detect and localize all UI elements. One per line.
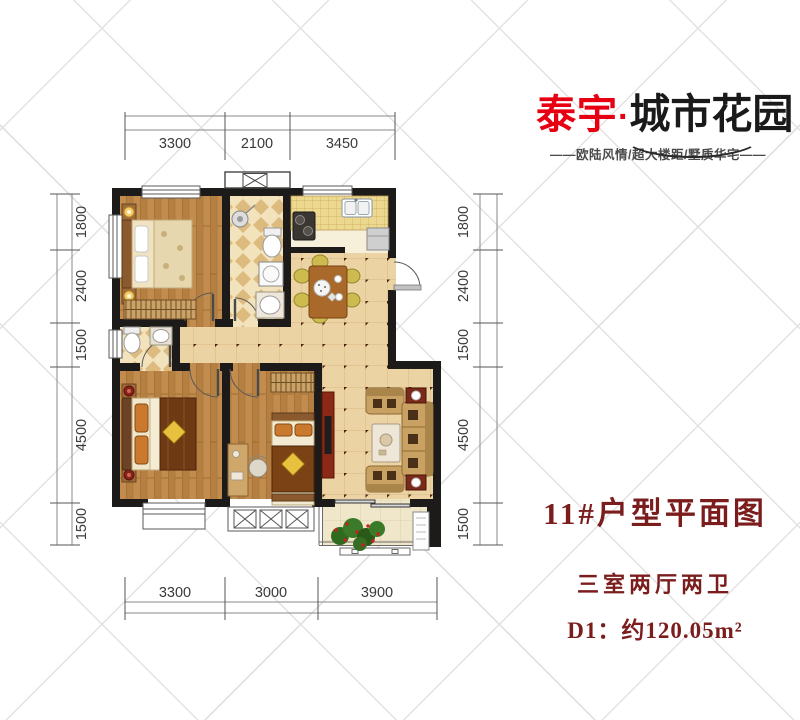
window-bathroom2-left: [109, 330, 122, 358]
dim-left-0: 1800: [74, 206, 90, 238]
dim-right-0: 1800: [456, 206, 472, 238]
dim-bottom-0: 3300: [159, 585, 191, 601]
dim-top-1: 2100: [241, 136, 273, 152]
tv: [325, 416, 332, 454]
bay-window-bedroom2: [143, 503, 205, 529]
dim-left-2: 1500: [74, 329, 90, 361]
project-name: 城市花园: [629, 90, 793, 138]
bedroom-1-furniture: [122, 204, 196, 319]
brand-separator: ·: [618, 98, 629, 136]
dimension-right: 1800 2400 1500 4500 1500: [456, 194, 503, 545]
bed1-headboard: [122, 220, 132, 288]
unit-info: 11#户型平面图 三室两厅两卫 D1：约120.05m²: [530, 488, 780, 645]
dim-bottom-1: 3000: [255, 585, 287, 601]
unit-rooms: 三室两厅两卫: [530, 567, 780, 599]
dim-right-4: 1500: [456, 508, 472, 540]
toilet-2: [124, 333, 140, 353]
bed2-headboard: [122, 398, 132, 470]
desk-chair: [249, 459, 267, 477]
entry-door-leaf: [394, 285, 421, 290]
stove: [293, 212, 315, 240]
dimension-top: 3300 2100 3450: [125, 112, 395, 160]
door-arc-entry: [394, 262, 420, 288]
dim-left-1: 2400: [74, 270, 90, 302]
brand-tagline: ——欧陆风情/超大楼距/墅质华宅——: [550, 149, 776, 162]
brand-logo: 泰宇·城市花园 ——欧陆风情/超大楼距/墅质华宅——: [536, 94, 776, 162]
dim-left-3: 4500: [74, 419, 90, 451]
dim-right-1: 2400: [456, 270, 472, 302]
window-bedroom1-left: [109, 215, 122, 278]
unit-area: D1：约120.05m²: [530, 611, 780, 645]
dim-bottom-2: 3900: [361, 585, 393, 601]
brand-name: 泰宇: [536, 93, 618, 137]
toilet: [263, 235, 281, 257]
bed3-headboard: [272, 413, 314, 421]
dim-left-4: 1500: [74, 508, 90, 540]
dim-top-0: 3300: [159, 136, 191, 152]
dimension-left: 1800 2400 1500 4500 1500: [50, 194, 90, 545]
fridge: [367, 228, 389, 250]
dim-right-2: 1500: [456, 329, 472, 361]
air-shaft: [225, 172, 290, 188]
dim-right-3: 4500: [456, 419, 472, 451]
bedroom-2-furniture: [122, 384, 196, 482]
dimension-bottom: 3300 3000 3900: [125, 577, 437, 620]
dim-top-2: 3450: [326, 136, 358, 152]
unit-title: 11#户型平面图: [530, 488, 780, 533]
window-bedroom1-top: [142, 186, 200, 198]
floorplan-poster: 3300 2100 3450 3300 3000 3900: [0, 0, 800, 720]
